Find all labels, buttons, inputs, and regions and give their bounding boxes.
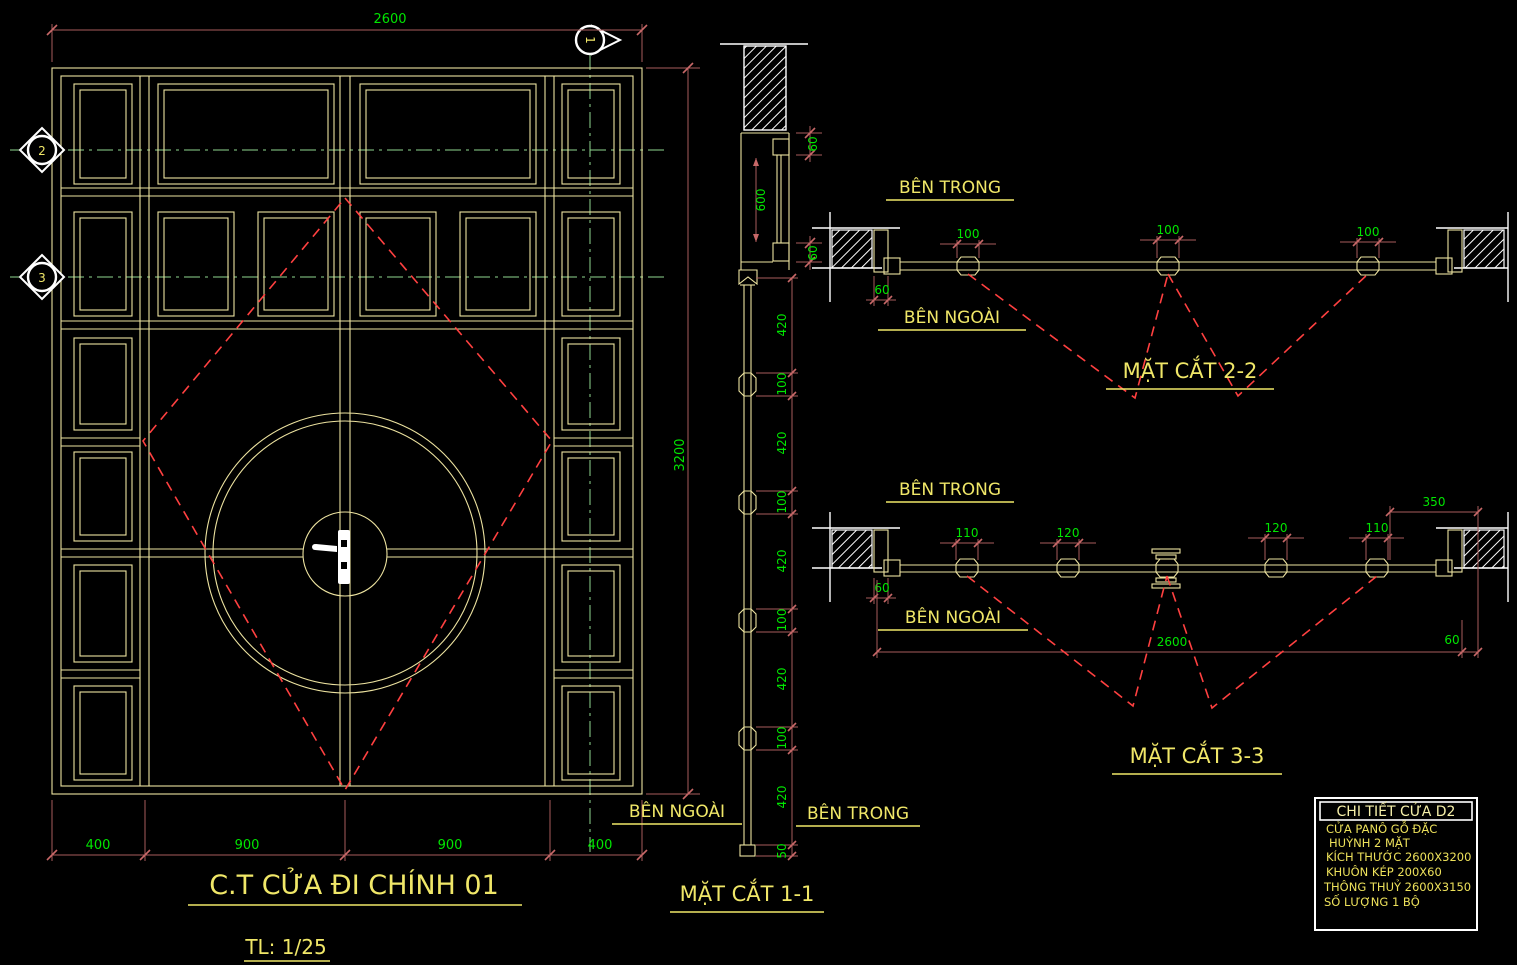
dim-60-bottom: 60 [806, 245, 820, 260]
dim-60-2-2: 60 [874, 283, 889, 297]
label-outside-2-2: BÊN NGOÀI [904, 306, 1000, 328]
dim-110-r: 110 [1366, 521, 1389, 535]
chain-6: 420 [775, 668, 789, 691]
dim-2600-total: 2600 [1157, 635, 1188, 649]
title-block-row-2: KÍCH THƯỚC 2600X3200 [1326, 849, 1471, 864]
chain-7: 100 [775, 727, 789, 750]
chain-2: 420 [775, 432, 789, 455]
dim-chain-1-1: 420 100 420 100 420 100 420 100 420 50 [756, 274, 798, 860]
section-3-3-title: MẶT CẮT 3-3 [1130, 740, 1265, 768]
wall-right-3-3 [1436, 512, 1508, 602]
square-panel-row [74, 212, 620, 316]
chain-5: 100 [775, 609, 789, 632]
section-3-3: BÊN TRONG [812, 478, 1508, 774]
title-block-header: CHI TIẾT CỬA D2 [1337, 801, 1456, 820]
dims-bottom: 400 900 900 400 [47, 800, 647, 861]
leaf-plan-3-3 [884, 549, 1452, 588]
chain-4: 420 [775, 550, 789, 573]
dim-100-c: 100 [1357, 225, 1380, 239]
door-inner-frame [61, 76, 633, 786]
cad-drawing-canvas: 1 2 3 2600 3200 [0, 0, 1517, 965]
dim-100-a: 100 [957, 227, 980, 241]
marker-2-label: 2 [38, 144, 46, 158]
title-block-row-3: KHUÔN KÉP 200X60 [1326, 864, 1442, 879]
wall-right-2-2 [1436, 212, 1508, 302]
section-2-2-title: MẶT CẮT 2-2 [1123, 355, 1258, 383]
leaf-section [739, 285, 756, 856]
head-frame-dims: 60 600 60 [753, 126, 822, 270]
title-block-row-5: SỐ LƯỢNG 1 BỘ [1324, 893, 1420, 909]
elevation-title: C.T CỬA ĐI CHÍNH 01 [209, 867, 499, 901]
dim-bottom-2: 900 [438, 838, 463, 853]
section-2-2: BÊN TRONG 100 [812, 176, 1508, 398]
label-inside-3-3: BÊN TRONG [899, 478, 1001, 500]
wall-hatch-top [744, 46, 786, 130]
title-block: CHI TIẾT CỬA D2 CỬA PANÔ GỖ ĐẶC HUỲNH 2 … [1315, 798, 1477, 930]
chain-9: 50 [775, 843, 789, 858]
dim-right-3200: 3200 [646, 63, 700, 799]
dim-60-top: 60 [806, 136, 820, 151]
dim-right-text: 3200 [673, 438, 688, 471]
marker-1-label: 1 [583, 36, 597, 44]
title-block-row-0: CỬA PANÔ GỖ ĐẶC [1326, 819, 1437, 836]
grid-marker-3: 3 [20, 255, 64, 299]
title-block-row-4: THÔNG THUỶ 2600X3150 [1323, 878, 1471, 894]
section-1-1: 60 600 60 [612, 44, 920, 912]
chain-1: 100 [775, 373, 789, 396]
door-handle [312, 530, 350, 584]
dim-60-3-3-right: 60 [1444, 633, 1459, 647]
title-block-row-1: HUỲNH 2 MẶT [1329, 835, 1411, 850]
chain-0: 420 [775, 314, 789, 337]
chain-8: 420 [775, 786, 789, 809]
dim-350: 350 [1423, 495, 1446, 509]
dim-120-r: 120 [1265, 521, 1288, 535]
leaf-plan-2-2 [884, 257, 1452, 275]
label-outside-1-1: BÊN NGOÀI [629, 800, 725, 822]
marker-3-label: 3 [38, 271, 46, 285]
dim-bottom-3: 400 [588, 838, 613, 853]
dim-600-glass: 600 [754, 189, 768, 212]
swing-v2-3-3 [1167, 576, 1377, 708]
dim-top-2600: 2600 [47, 12, 647, 62]
door-rails [61, 188, 633, 678]
grid-marker-2: 2 [20, 128, 64, 172]
door-mullions [140, 76, 554, 786]
elevation-scale: TL: 1/25 [244, 935, 326, 959]
dim-top-text: 2600 [373, 12, 406, 27]
label-outside-3-3: BÊN NGOÀI [905, 606, 1001, 628]
transom-panels [74, 84, 620, 184]
dim-100-b: 100 [1157, 223, 1180, 237]
dim-bottom-1: 900 [235, 838, 260, 853]
swing-diamond-dashed [143, 198, 552, 790]
swing-v1-3-3 [967, 576, 1167, 706]
section-1-1-title: MẶT CẮT 1-1 [680, 878, 815, 906]
dim-bottom-0: 400 [86, 838, 111, 853]
sill-tooth [739, 270, 757, 284]
chain-3: 100 [775, 491, 789, 514]
dims-2-2: 100 100 100 60 [866, 223, 1396, 306]
label-inside-1-1: BÊN TRONG [807, 802, 909, 824]
door-elevation: 1 2 3 2600 3200 [10, 12, 700, 961]
door-detail-drawing: 1 2 3 2600 3200 [0, 0, 1517, 965]
label-inside-2-2: BÊN TRONG [899, 176, 1001, 198]
dim-120-l: 120 [1057, 526, 1080, 540]
dim-110-l: 110 [956, 526, 979, 540]
